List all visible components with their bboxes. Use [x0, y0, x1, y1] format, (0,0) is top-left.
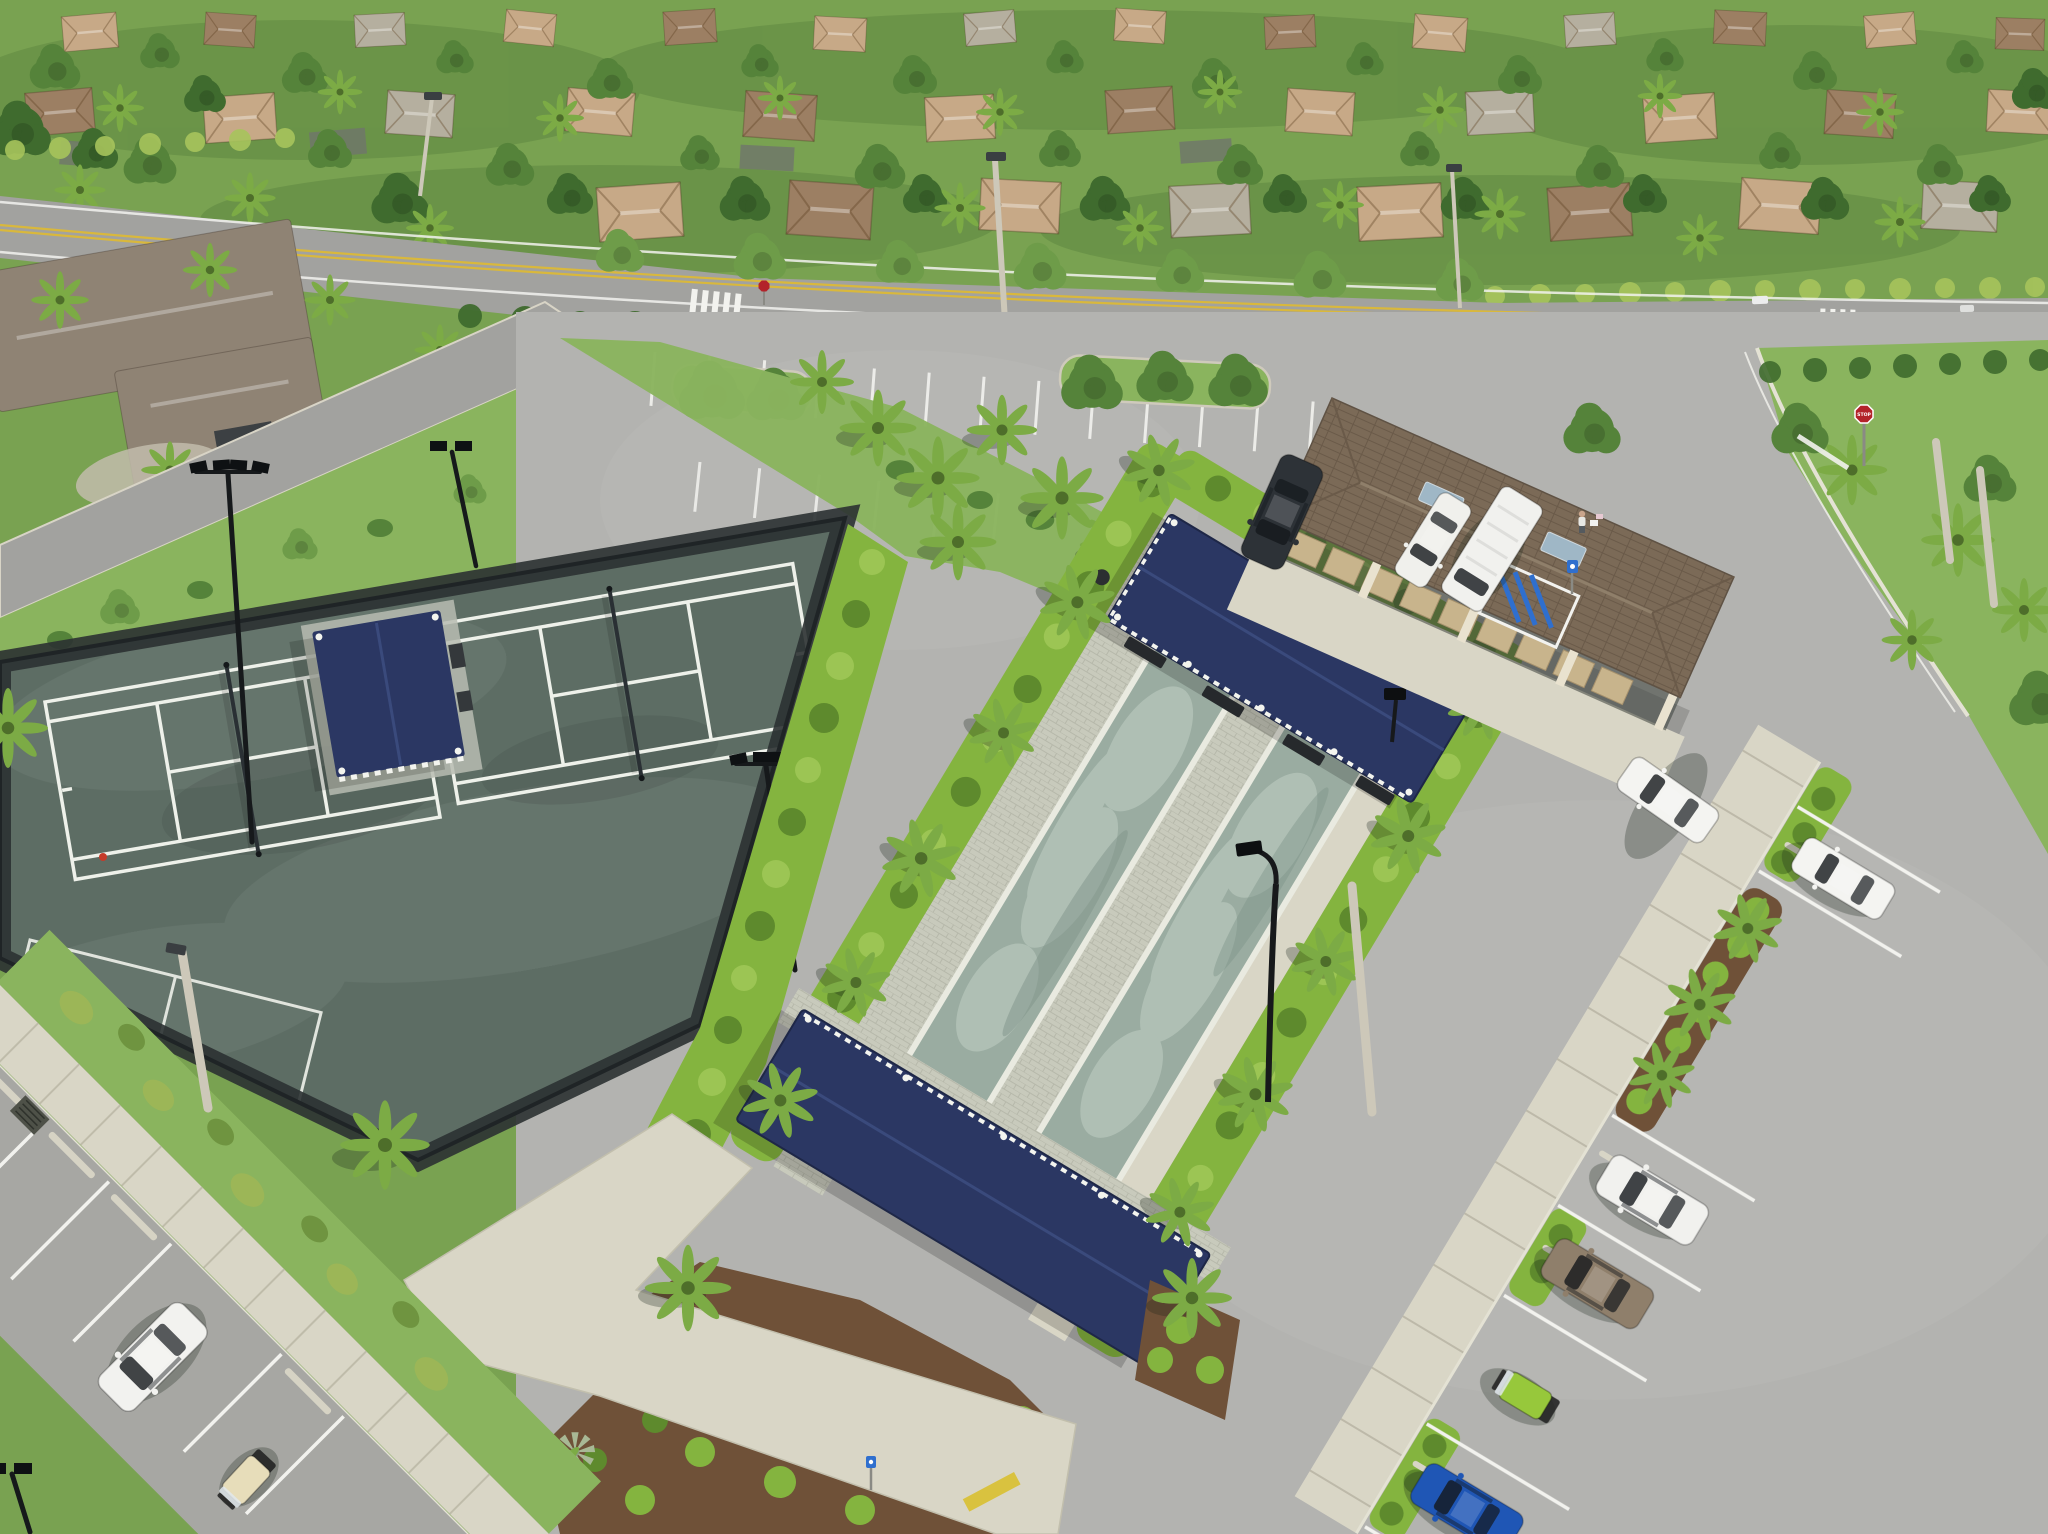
- tennis-shade-canopy: [287, 600, 484, 798]
- stop-sign-text: STOP: [1857, 412, 1871, 418]
- corner-flag: [99, 853, 107, 861]
- distant-car: [1752, 296, 1768, 305]
- aerial-photo-community-sports-complex: STOP: [0, 0, 2048, 1534]
- sidewalk-palm: [340, 1100, 430, 1190]
- distant-car: [1960, 305, 1974, 312]
